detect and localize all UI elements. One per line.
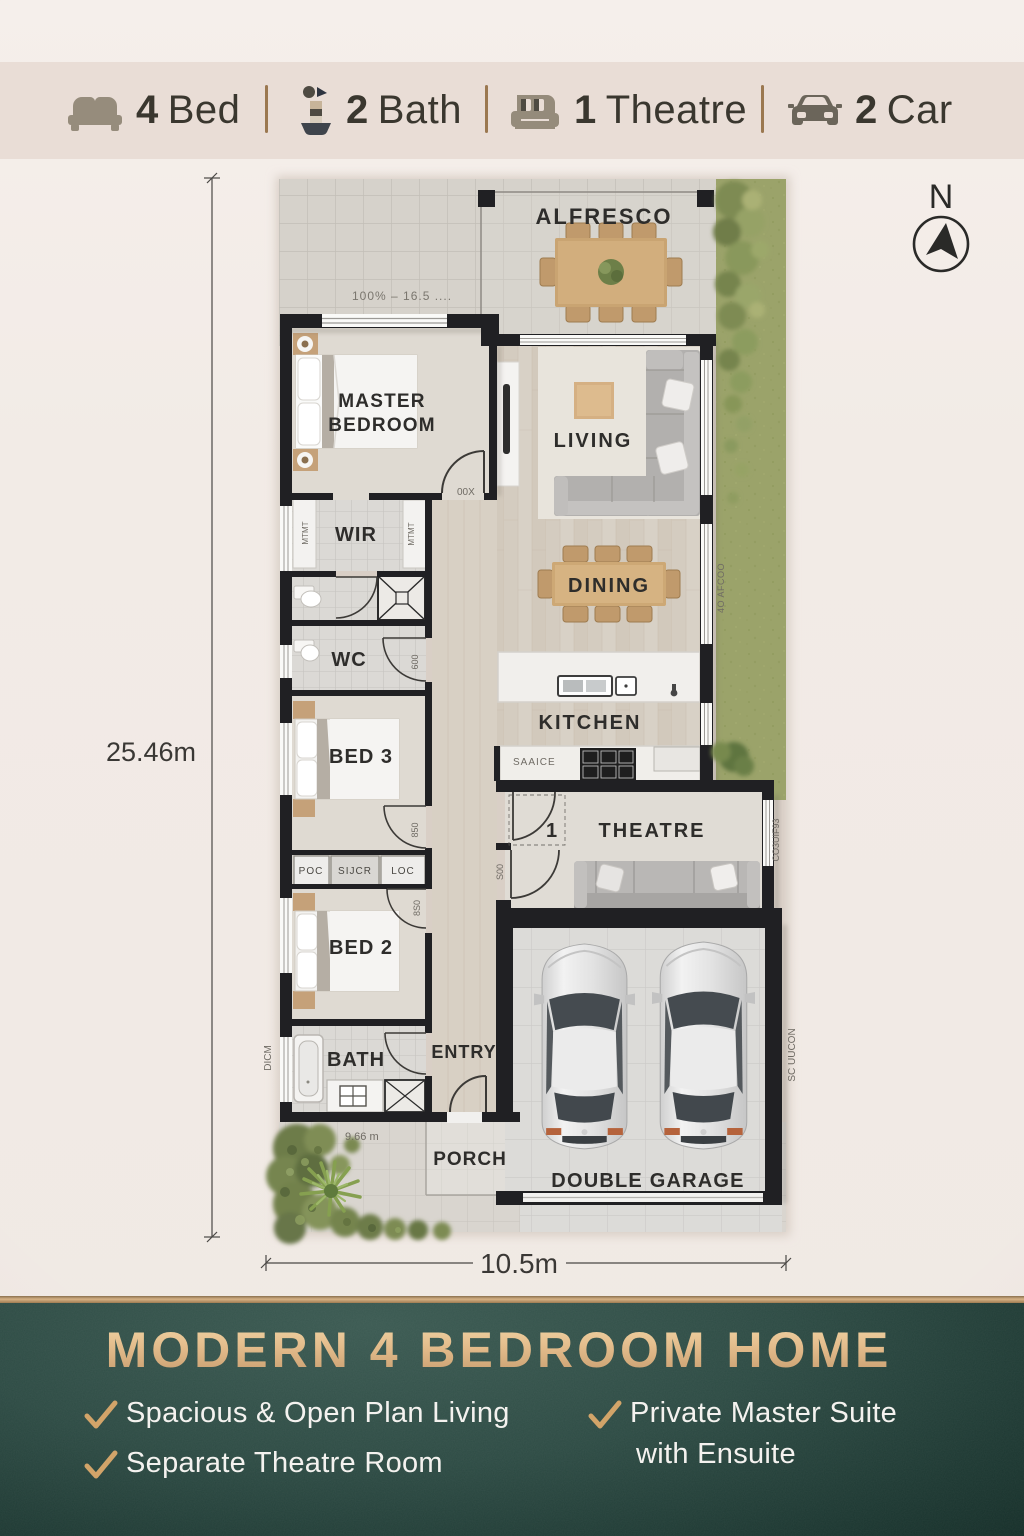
svg-text:S00: S00 <box>495 864 505 880</box>
svg-text:THEATRE: THEATRE <box>599 820 706 842</box>
svg-text:POC: POC <box>299 866 324 877</box>
svg-text:00X: 00X <box>457 487 475 498</box>
svg-text:WC: WC <box>331 649 366 671</box>
svg-text:BED 2: BED 2 <box>329 937 393 959</box>
svg-text:8S0: 8S0 <box>412 900 422 916</box>
svg-text:MTMT: MTMT <box>301 521 310 544</box>
svg-text:SIJCR: SIJCR <box>338 866 372 877</box>
svg-text:SC UUCON: SC UUCON <box>787 1028 798 1081</box>
svg-text:SAAICE: SAAICE <box>513 757 556 768</box>
svg-text:25.46m: 25.46m <box>106 737 196 767</box>
svg-text:PORCH: PORCH <box>433 1149 507 1170</box>
svg-text:4O AFCOO: 4O AFCOO <box>716 563 726 613</box>
svg-text:MTMT: MTMT <box>407 522 416 545</box>
svg-text:ALFRESCO: ALFRESCO <box>536 204 673 229</box>
svg-text:WIR: WIR <box>335 524 377 546</box>
svg-text:BED 3: BED 3 <box>329 746 393 768</box>
svg-text:10.5m: 10.5m <box>480 1248 558 1279</box>
svg-text:CO3UIF93: CO3UIF93 <box>771 818 781 861</box>
svg-text:MASTER: MASTER <box>338 391 425 412</box>
svg-text:LIVING: LIVING <box>554 430 633 452</box>
svg-text:BATH: BATH <box>327 1049 385 1071</box>
svg-text:LOC: LOC <box>391 866 415 877</box>
svg-text:DINING: DINING <box>568 575 650 597</box>
svg-text:9.66 m: 9.66 m <box>345 1131 379 1143</box>
svg-text:850: 850 <box>410 822 420 837</box>
svg-text:BEDROOM: BEDROOM <box>328 415 436 436</box>
svg-text:1: 1 <box>546 820 558 842</box>
svg-text:DICM: DICM <box>263 1045 274 1071</box>
svg-text:N: N <box>929 178 954 216</box>
svg-text:100% – 16.5 ....: 100% – 16.5 .... <box>352 289 452 303</box>
svg-text:600: 600 <box>410 654 420 669</box>
svg-text:ENTRY: ENTRY <box>431 1042 496 1062</box>
svg-text:KITCHEN: KITCHEN <box>539 712 642 734</box>
svg-text:DOUBLE GARAGE: DOUBLE GARAGE <box>551 1170 744 1192</box>
